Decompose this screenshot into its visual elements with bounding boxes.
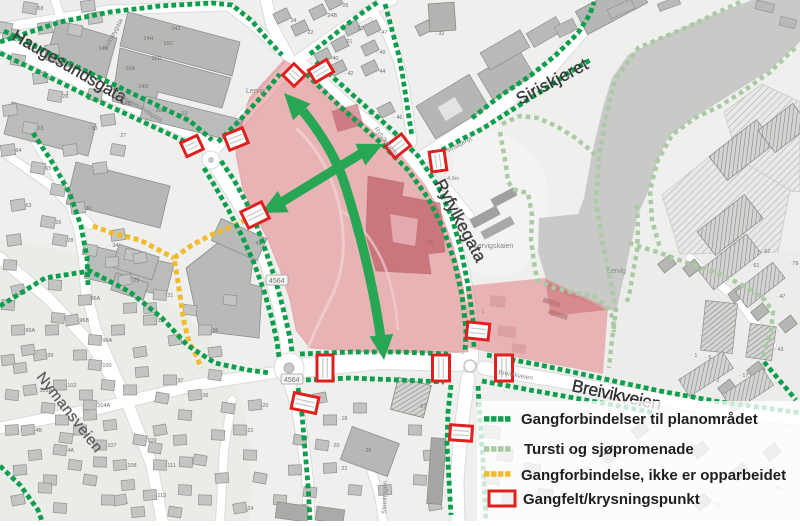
svg-text:· 17: · 17 (739, 373, 748, 379)
svg-text:· 37: · 37 (174, 378, 183, 384)
svg-text:· 61: · 61 (750, 263, 759, 269)
svg-text:Gangforbindelser til planområd: Gangforbindelser til planområdet (521, 411, 758, 428)
svg-text:· 22: · 22 (338, 466, 347, 472)
svg-text:· 44: · 44 (376, 69, 385, 75)
svg-text:· 108: · 108 (124, 463, 137, 469)
svg-text:· 16C: · 16C (160, 41, 173, 47)
svg-text:Lervig: Lervig (246, 88, 265, 95)
svg-text:· 1: · 1 (691, 353, 697, 359)
svg-text:· 16D: · 16D (148, 56, 161, 62)
svg-text:· 30: · 30 (88, 126, 97, 132)
svg-text:· 20: · 20 (259, 403, 268, 409)
svg-text:· 100: · 100 (99, 363, 112, 369)
svg-text:· 16A: · 16A (122, 66, 135, 72)
svg-text:· 43: · 43 (774, 347, 783, 353)
svg-text:· 79: · 79 (789, 261, 798, 267)
svg-text:· 113: · 113 (154, 493, 166, 499)
svg-text:· 36: · 36 (209, 328, 218, 334)
svg-text:· 47: · 47 (776, 294, 785, 300)
svg-text:· 63: · 63 (22, 203, 31, 209)
svg-text:· 96A: · 96A (87, 296, 100, 302)
svg-text:· 29: · 29 (130, 278, 139, 284)
svg-text:· 26: · 26 (59, 94, 68, 100)
svg-text:· 30: · 30 (82, 206, 91, 212)
svg-text:Steinhagen: Steinhagen (381, 481, 389, 514)
svg-text:· 99A: · 99A (22, 328, 35, 334)
svg-text:· 26: · 26 (52, 220, 61, 226)
svg-text:· 47: · 47 (378, 30, 387, 36)
svg-text:Lervig: Lervig (607, 268, 626, 275)
svg-text:· 4B: · 4B (32, 428, 42, 434)
svg-text:· 22: · 22 (244, 428, 253, 434)
svg-text:· 23: · 23 (34, 126, 43, 132)
svg-text:· 109: · 109 (144, 438, 157, 444)
svg-text:· 46: · 46 (393, 115, 402, 121)
svg-text:· 24: · 24 (244, 506, 253, 512)
svg-text:· 4A: · 4A (64, 448, 74, 454)
svg-text:· 67: · 67 (761, 249, 770, 255)
svg-text:Gangforbindelse, ikke er oppar: Gangforbindelse, ikke er opparbeidet (521, 467, 786, 484)
svg-text:Lervigskaien: Lervigskaien (474, 243, 513, 250)
svg-text:Gangfelt/krysningspunkt: Gangfelt/krysningspunkt (523, 491, 700, 508)
svg-text:· 67: · 67 (417, 404, 426, 410)
svg-text:4564: 4564 (284, 377, 300, 384)
svg-text:· 102: · 102 (64, 383, 77, 389)
svg-text:· 68: · 68 (34, 6, 43, 12)
svg-text:· 65: · 65 (42, 166, 51, 172)
svg-text:· 18: · 18 (338, 416, 347, 422)
svg-text:· 49: · 49 (376, 50, 385, 56)
svg-text:· 14D: · 14D (135, 84, 148, 90)
svg-text:· 22: · 22 (304, 30, 313, 36)
svg-text:· 104A: · 104A (94, 403, 111, 409)
svg-text:· 34: · 34 (109, 243, 118, 249)
svg-text:· 31: · 31 (164, 293, 173, 299)
svg-text:· 99: · 99 (44, 353, 53, 359)
svg-text:· 23: · 23 (354, 26, 363, 32)
svg-text:· 14J: · 14J (168, 26, 180, 32)
svg-text:· 96B: · 96B (76, 318, 89, 324)
svg-text:· 39: · 39 (199, 393, 208, 399)
svg-text:· 24B: · 24B (324, 13, 337, 19)
svg-text:· 32: · 32 (435, 31, 444, 37)
svg-text:· 27: · 27 (117, 133, 126, 139)
svg-text:Tursti og sjøpromenade: Tursti og sjøpromenade (524, 441, 694, 458)
svg-text:· 20: · 20 (330, 443, 339, 449)
svg-text:· 26: · 26 (362, 448, 371, 454)
svg-text:· 21: · 21 (343, 39, 352, 45)
svg-text:· 98A: · 98A (99, 338, 112, 344)
svg-text:· 28: · 28 (64, 238, 73, 244)
svg-text:· 14H: · 14H (140, 36, 153, 42)
svg-text:4.9m: 4.9m (447, 176, 460, 182)
svg-text:· 34: · 34 (287, 18, 296, 24)
svg-text:· 26: · 26 (339, 3, 348, 9)
svg-text:· 111: · 111 (164, 463, 176, 469)
svg-text:· 42: · 42 (344, 71, 353, 77)
svg-text:· 64: · 64 (12, 148, 21, 154)
svg-text:· 40: · 40 (329, 56, 338, 62)
svg-text:4564: 4564 (269, 278, 285, 285)
